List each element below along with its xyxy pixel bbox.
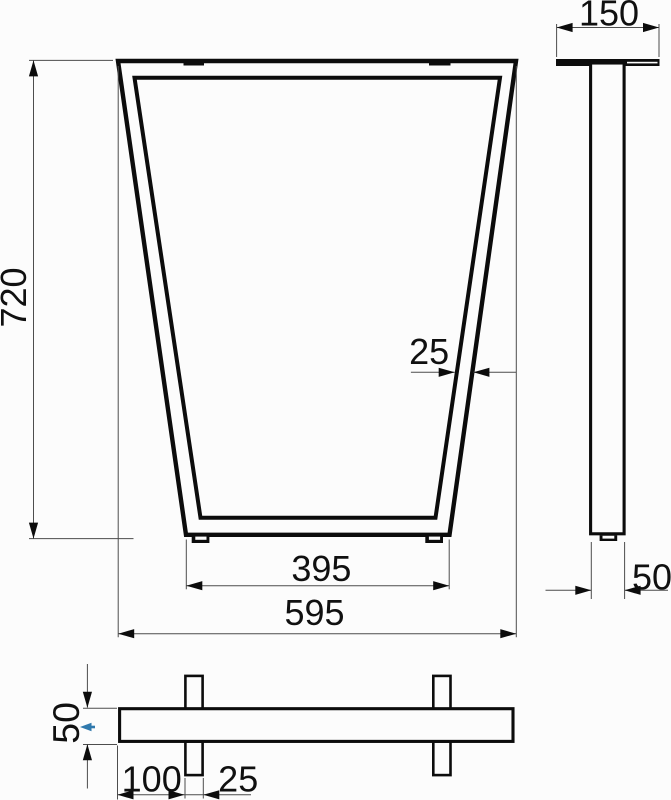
svg-text:50: 50 xyxy=(45,702,87,744)
svg-text:150: 150 xyxy=(579,0,639,34)
svg-text:50: 50 xyxy=(632,557,671,598)
svg-text:25: 25 xyxy=(218,759,258,800)
svg-text:395: 395 xyxy=(291,548,351,589)
svg-text:720: 720 xyxy=(0,267,34,327)
svg-text:100: 100 xyxy=(122,759,182,800)
svg-text:25: 25 xyxy=(409,331,449,372)
svg-text:595: 595 xyxy=(284,592,344,633)
